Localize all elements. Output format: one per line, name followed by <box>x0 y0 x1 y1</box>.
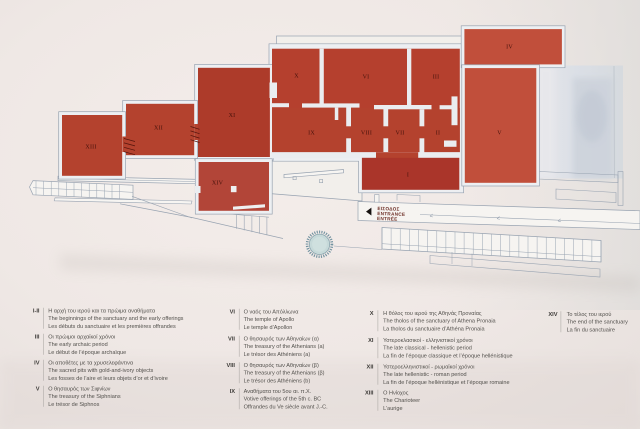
svg-text:Les fosses de l’aire et leurs: Les fosses de l’aire et leurs objets d’o… <box>48 376 168 382</box>
svg-text:The sacred pits with gold-and-: The sacred pits with gold-and-ivory obje… <box>48 368 153 374</box>
svg-text:IV: IV <box>506 45 513 51</box>
svg-text:Οι πρώιμοι αρχαϊκοί χρόνοι: Οι πρώιμοι αρχαϊκοί χρόνοι <box>48 334 116 341</box>
svg-text:XIV: XIV <box>548 312 557 318</box>
svg-text:Le début de l’époque archaïque: Le début de l’époque archaïque <box>48 350 126 356</box>
svg-text:L’aurige: L’aurige <box>383 406 402 412</box>
svg-text:The Charioteer: The Charioteer <box>383 398 420 404</box>
svg-text:Ο ναός του Απόλλωνα: Ο ναός του Απόλλωνα <box>244 309 300 316</box>
svg-text:Το τέλος του ιερού: Το τέλος του ιερού <box>567 311 612 318</box>
svg-text:VI: VI <box>363 75 370 81</box>
svg-text:XIII: XIII <box>365 391 374 397</box>
svg-text:II: II <box>436 131 440 137</box>
svg-text:Ο θησαυρός των Σιφνίων: Ο θησαυρός των Σιφνίων <box>48 386 110 393</box>
svg-text:V: V <box>497 131 502 137</box>
svg-text:The treasury of the Athenians: The treasury of the Athenians (β) <box>244 371 325 377</box>
svg-text:VIII: VIII <box>226 363 235 369</box>
svg-text:XI: XI <box>229 113 236 119</box>
svg-text:La fin de l’époque hellénistiq: La fin de l’époque hellénistique et l’ép… <box>383 380 509 386</box>
svg-text:XII: XII <box>154 126 163 132</box>
svg-text:The late hellenistic - roman p: The late hellenistic - roman period <box>383 372 467 378</box>
svg-text:The early archaic period: The early archaic period <box>48 342 108 348</box>
svg-text:Le trésor des Athéniens (a): Le trésor des Athéniens (a) <box>244 352 311 358</box>
svg-text:VII: VII <box>396 131 405 137</box>
svg-text:La fin du sanctuaire: La fin du sanctuaire <box>567 327 615 333</box>
svg-text:The late classical - hellenist: The late classical - hellenistic period <box>383 346 472 352</box>
svg-text:IX: IX <box>230 389 236 395</box>
svg-text:Υστεροκλασικοί - ελληνιστικοί: Υστεροκλασικοί - ελληνιστικοί χρόνοι <box>383 337 473 344</box>
svg-text:Le trésor des Athéniens (b): Le trésor des Athéniens (b) <box>244 378 311 384</box>
svg-text:The treasury of the Siphnians: The treasury of the Siphnians <box>48 394 121 400</box>
svg-text:The end of the sanctuary: The end of the sanctuary <box>567 320 629 326</box>
svg-text:Votive offerings of the 5th c.: Votive offerings of the 5th c. BC <box>244 397 322 403</box>
svg-text:I-II: I-II <box>33 309 40 315</box>
svg-text:I: I <box>407 173 409 179</box>
svg-text:Offrandes du Ve siècle avant J: Offrandes du Ve siècle avant J.-C. <box>244 404 329 410</box>
svg-text:The treasury of the Athenians: The treasury of the Athenians (a) <box>244 344 325 350</box>
svg-text:VI: VI <box>230 310 236 316</box>
svg-text:X: X <box>370 311 374 317</box>
svg-text:Les débuts du sanctuaire et le: Les débuts du sanctuaire et les première… <box>48 324 176 330</box>
svg-text:Le trésor de Siphnos: Le trésor de Siphnos <box>48 402 99 408</box>
svg-text:Ο θησαυρός των Αθηναίων (β): Ο θησαυρός των Αθηναίων (β) <box>244 362 319 369</box>
svg-text:III: III <box>433 75 440 81</box>
svg-text:Ο θησαυρός των Αθηναίων (α): Ο θησαυρός των Αθηναίων (α) <box>244 336 319 343</box>
svg-text:La tholos du sanctuaire d’Athé: La tholos du sanctuaire d’Athéna Pronaia <box>383 326 485 332</box>
svg-text:Αναθήματα του 5ου αι. π.Χ.: Αναθήματα του 5ου αι. π.Χ. <box>244 388 312 395</box>
svg-text:Η αρχή του ιερού και τα πρώιμα: Η αρχή του ιερού και τα πρώιμα αναθήματα <box>48 308 156 315</box>
svg-text:XIV: XIV <box>212 181 224 187</box>
svg-text:VII: VII <box>228 337 235 343</box>
svg-text:Οι αποθέτες με τα χρυσελεφάντι: Οι αποθέτες με τα χρυσελεφάντινα <box>48 360 134 367</box>
svg-text:III: III <box>35 335 40 341</box>
svg-text:Η θόλος του ιερού της Αθηνάς Π: Η θόλος του ιερού της Αθηνάς Προναίας <box>383 310 482 317</box>
svg-text:V: V <box>36 387 40 393</box>
svg-text:The beginnings of the sanctuar: The beginnings of the sanctuary and the … <box>48 316 183 322</box>
svg-text:The tholos of the sanctuary of: The tholos of the sanctuary of Athena Pr… <box>383 319 496 325</box>
svg-text:X: X <box>294 74 299 80</box>
svg-text:Υστεροελληνιστικοί - ρωμαϊκοί: Υστεροελληνιστικοί - ρωμαϊκοί χρόνοι <box>383 364 475 371</box>
svg-text:Ο Ηνίοχος: Ο Ηνίοχος <box>383 391 409 397</box>
svg-text:Le temple d’Apollon: Le temple d’Apollon <box>244 325 293 331</box>
svg-text:IX: IX <box>308 131 315 137</box>
svg-text:La fin de l’époque classique e: La fin de l’époque classique et l’époque… <box>383 353 513 359</box>
svg-text:VIII: VIII <box>361 131 372 137</box>
svg-text:XII: XII <box>367 365 374 371</box>
svg-text:XIII: XIII <box>85 144 96 150</box>
svg-text:The temple of Apollo: The temple of Apollo <box>244 317 295 323</box>
svg-text:IV: IV <box>34 361 40 367</box>
svg-text:XI: XI <box>368 338 374 344</box>
